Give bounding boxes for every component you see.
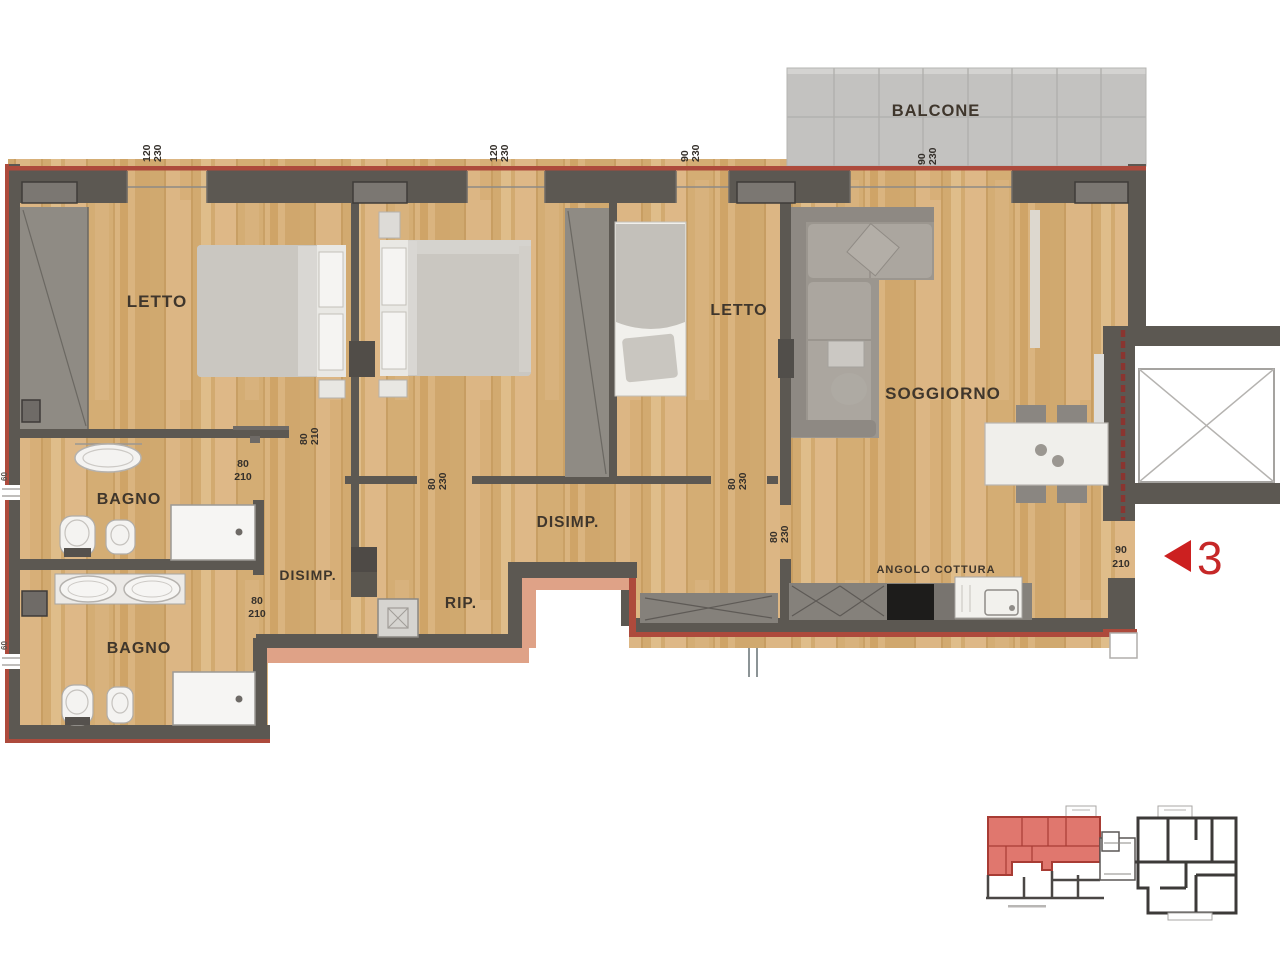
svg-text:BAGNO: BAGNO <box>107 640 172 657</box>
svg-text:210: 210 <box>234 471 252 483</box>
svg-text:230: 230 <box>737 472 749 490</box>
svg-text:RIP.: RIP. <box>445 595 477 612</box>
svg-text:DISIMP.: DISIMP. <box>279 567 336 583</box>
svg-text:BALCONE: BALCONE <box>892 102 981 120</box>
svg-text:80: 80 <box>237 458 249 470</box>
svg-text:230: 230 <box>927 147 939 165</box>
svg-text:230: 230 <box>779 525 791 543</box>
svg-text:210: 210 <box>1112 558 1130 570</box>
svg-text:80: 80 <box>251 595 263 607</box>
svg-text:DISIMP.: DISIMP. <box>537 514 600 531</box>
svg-text:230: 230 <box>437 472 449 490</box>
svg-text:230: 230 <box>152 144 164 162</box>
svg-text:210: 210 <box>309 427 321 445</box>
svg-text:230: 230 <box>499 144 511 162</box>
svg-text:BAGNO: BAGNO <box>97 491 162 508</box>
svg-text:60: 60 <box>0 641 9 650</box>
svg-text:210: 210 <box>248 608 266 620</box>
svg-text:LETTO: LETTO <box>710 302 767 319</box>
svg-text:60: 60 <box>0 472 9 481</box>
svg-text:3: 3 <box>1197 532 1223 584</box>
svg-text:ANGOLO COTTURA: ANGOLO COTTURA <box>876 564 995 576</box>
svg-text:SOGGIORNO: SOGGIORNO <box>885 384 1001 403</box>
svg-text:LETTO: LETTO <box>127 292 187 311</box>
svg-text:90: 90 <box>1115 544 1127 556</box>
svg-text:230: 230 <box>690 144 702 162</box>
